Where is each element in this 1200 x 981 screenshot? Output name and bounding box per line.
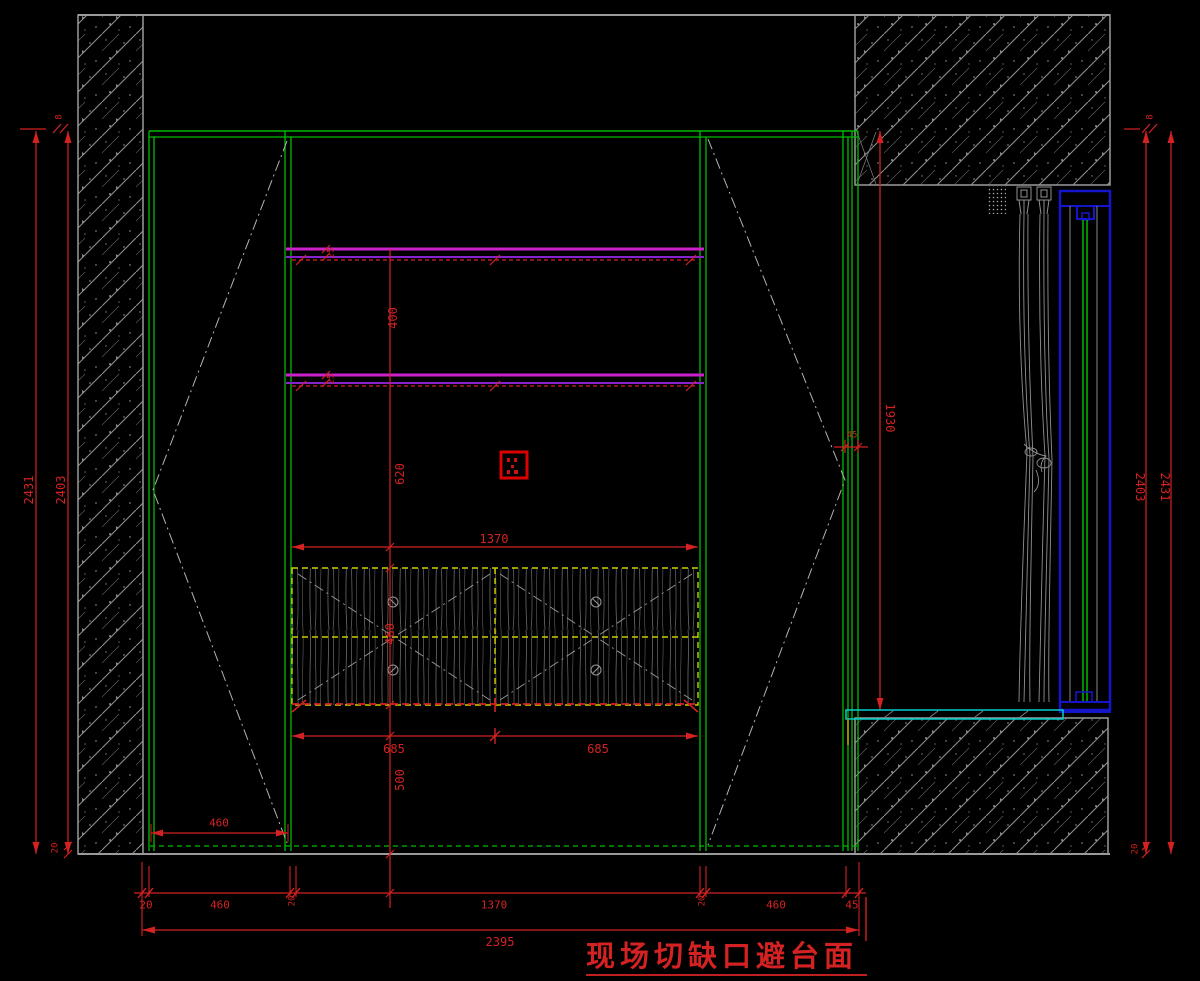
dim-label-left-top-gap: 8 — [56, 114, 65, 119]
curtain-bracket-left — [1017, 187, 1031, 214]
dim-label-bottom-20a: 20 — [139, 900, 152, 911]
dim-label-bottom-20b: 20 — [289, 896, 298, 907]
dim-notch-45 — [834, 440, 868, 453]
arrow — [65, 131, 72, 143]
dim-label-bottom-20c: 20 — [699, 896, 708, 907]
left-door-swing — [153, 141, 287, 843]
curtain-track-block — [987, 186, 1006, 214]
dim-label-left-overall: 2431 — [23, 476, 35, 505]
dim-label-right-inner: 2403 — [1134, 473, 1146, 502]
dim-label-right-bottom-gap: 20 — [1132, 844, 1141, 855]
dim-label-left-inner: 2403 — [55, 476, 67, 505]
left-wall-section — [78, 15, 143, 854]
dim-label-shelf2-thickness: 25 — [328, 374, 337, 385]
arrow — [1143, 131, 1150, 143]
dim-label-frame-height: 1930 — [884, 404, 896, 433]
dim-label-door-width: 460 — [209, 818, 229, 829]
shelf-lower — [286, 371, 704, 391]
dim-label-shelf1-thickness: 25 — [328, 248, 337, 259]
dim-label-right-overall: 2431 — [1159, 473, 1171, 502]
dim-label-bottom-460a: 460 — [210, 900, 230, 911]
dim-label-bottom-1370: 1370 — [481, 900, 508, 911]
curtain-assembly — [987, 186, 1052, 702]
dim-label-total-width: 2395 — [486, 936, 515, 948]
shelf-upper — [286, 245, 704, 265]
drawing-linework — [0, 0, 1200, 981]
dim-label-bottom-45: 45 — [845, 900, 858, 911]
dim-label-left-bottom-gap: 20 — [52, 843, 61, 854]
dim-label-bottom-460b: 460 — [766, 900, 786, 911]
dim-label-drawer-height: 460 — [384, 623, 396, 645]
dim-685 — [292, 728, 698, 744]
dim-label-notch-width: 45 — [847, 432, 858, 441]
ceiling-beam-section — [855, 15, 1110, 185]
dim-label-shelf-to-counter: 620 — [394, 463, 406, 485]
dim-label-drawer-left: 685 — [383, 743, 405, 755]
dim-label-shelf-spacing: 400 — [387, 307, 399, 329]
window-frame — [1060, 191, 1110, 712]
curtain-bracket-right — [1037, 187, 1051, 214]
site-note-text: 现场切缺口避台面 — [586, 940, 867, 976]
curtain-folds — [1019, 214, 1052, 702]
dim-label-right-top-gap: 8 — [1147, 114, 1156, 119]
dim-2395-arrow-right — [846, 927, 859, 934]
cad-elevation-drawing: 2431 2403 8 20 25 25 400 620 1370 460 68… — [0, 0, 1200, 981]
arrow — [33, 842, 40, 854]
cabinet-frame — [149, 131, 858, 851]
arrow — [33, 131, 40, 143]
dim-2395-arrow-left — [142, 927, 155, 934]
arrow — [1168, 131, 1175, 143]
dim-label-base-height: 500 — [394, 769, 406, 791]
right-door-swing — [708, 139, 845, 845]
arrow — [1168, 842, 1175, 854]
dim-label-opening-width: 1370 — [480, 533, 509, 545]
power-socket-symbol — [501, 452, 527, 478]
dim-label-drawer-right: 685 — [587, 743, 609, 755]
right-base-wall-section — [855, 718, 1108, 854]
